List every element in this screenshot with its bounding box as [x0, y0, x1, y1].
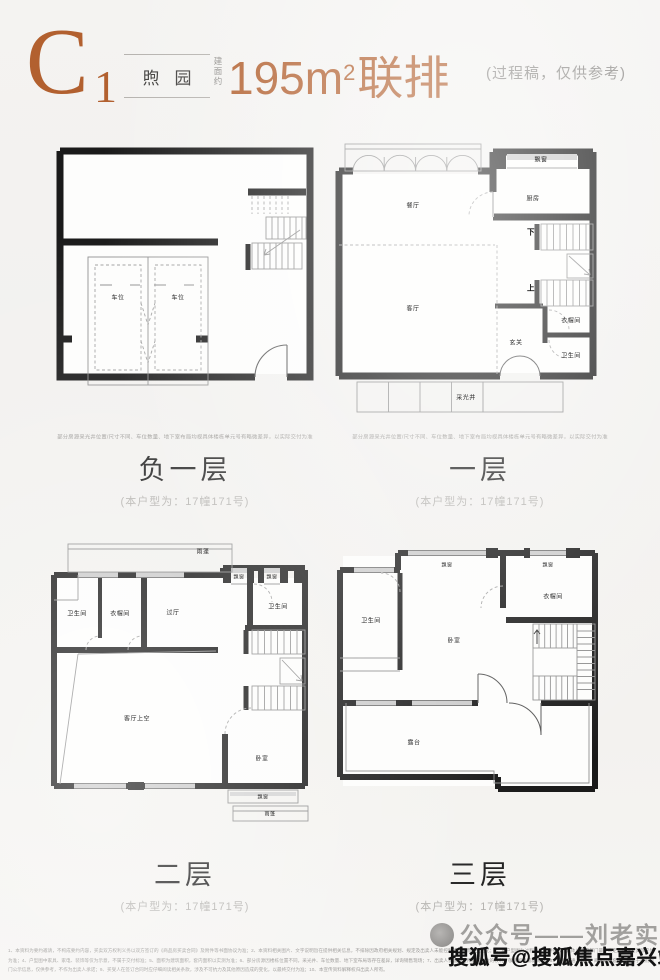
caption-first-floor: 部分房源采光井位置/尺寸不同、车位数量、地下室布局均视具体楼栋单元号有略微差异，…: [330, 432, 630, 509]
floorplan-second-floor: 雨蓬 飘窗 飘窗 卫生间 衣帽间 过厅 卫生间 客厅上空 卧室 飘窗 雨蓬: [40, 540, 325, 840]
plan-disclaimer: 部分房源采光井位置/尺寸不同、车位数量、地下室布局均视具体楼栋单元号有略微差异，…: [47, 432, 323, 440]
floorplan-first-floor: 餐厅 厨房 飘窗 客厅 玄关 衣帽间 卫生间 采光井 下 上: [333, 128, 618, 420]
room-label: 车位: [171, 293, 184, 302]
room-label: 衣帽间: [543, 592, 563, 601]
caption-third-floor: 三层 (本户型为：17幢171号): [330, 846, 630, 914]
room-label: 卫生间: [561, 351, 581, 360]
room-label: 过厅: [166, 608, 179, 617]
draft-note: (过程稿，仅供参考): [486, 62, 626, 83]
room-label: 飘窗: [257, 794, 268, 801]
floorplan-second-floor-drawing: [40, 540, 325, 840]
room-label: 飘窗: [266, 574, 277, 581]
room-label: 客厅: [406, 304, 419, 313]
room-label: 雨蓬: [196, 547, 209, 556]
plan-disclaimer: 部分房源采光井位置/尺寸不同、车位数量、地下室布局均视具体楼栋单元号有略微差异，…: [342, 432, 618, 440]
stair-down-label: 下: [527, 227, 535, 238]
room-label: 卫生间: [67, 609, 87, 618]
room-label: 采光井: [456, 393, 476, 402]
room-label: 衣帽间: [110, 609, 130, 618]
floor-name: 三层: [330, 853, 630, 892]
unit-note: (本户型为：17幢171号): [330, 493, 630, 509]
room-label: 玄关: [509, 338, 522, 347]
room-label: 车位: [111, 293, 124, 302]
room-label: 飘窗: [233, 574, 244, 581]
room-label: 餐厅: [406, 201, 419, 210]
floor-name: 二层: [35, 853, 335, 892]
room-label: 飘窗: [441, 562, 452, 569]
room-label: 飘窗: [534, 155, 547, 164]
area-value: 195m: [228, 52, 343, 104]
unit-note: (本户型为：17幢171号): [330, 898, 630, 914]
floorplan-basement-drawing: [50, 135, 320, 410]
area-headline: 195m2联排: [228, 42, 449, 108]
caption-basement: 部分房源采光井位置/尺寸不同、车位数量、地下室布局均视具体楼栋单元号有略微差异，…: [35, 432, 335, 509]
caption-second-floor: 二层 (本户型为：17幢171号): [35, 846, 335, 914]
room-label: 卫生间: [268, 602, 288, 611]
room-label: 厨房: [526, 194, 539, 203]
unit-code-number: 1: [94, 64, 117, 110]
stair-up-label: 上: [527, 283, 535, 294]
floor-name: 负一层: [35, 448, 335, 487]
unit-note: (本户型为：17幢171号): [35, 493, 335, 509]
room-label: 卧室: [255, 754, 268, 763]
floorplan-sheet: C 1 煦园 建面约 195m2联排 (过程稿，仅供参考): [0, 0, 660, 980]
unit-note: (本户型为：17幢171号): [35, 898, 335, 914]
community-name: 煦园: [124, 54, 210, 98]
floorplan-basement: 车位 车位: [50, 135, 320, 410]
floorplan-third-floor: 飘窗 飘窗 衣帽间 卫生间 卧室 露台: [328, 540, 613, 840]
floorplan-third-floor-drawing: [328, 540, 613, 840]
room-label: 衣帽间: [561, 316, 581, 325]
room-label: 卧室: [447, 636, 460, 645]
unit-code-letter: C: [26, 24, 89, 101]
room-label: 露台: [407, 738, 420, 747]
room-label: 客厅上空: [124, 714, 150, 723]
area-suffix: 联排: [357, 52, 449, 104]
area-prefix: 建面约: [213, 56, 223, 86]
watermark-sohu: 搜狐号@搜狐焦点嘉兴站: [448, 941, 660, 970]
floor-name: 一层: [330, 448, 630, 487]
room-label: 卫生间: [361, 616, 381, 625]
floorplan-first-floor-drawing: [333, 128, 618, 420]
room-label: 飘窗: [542, 562, 553, 569]
room-label: 雨蓬: [264, 811, 275, 818]
area-sup: 2: [343, 60, 355, 85]
